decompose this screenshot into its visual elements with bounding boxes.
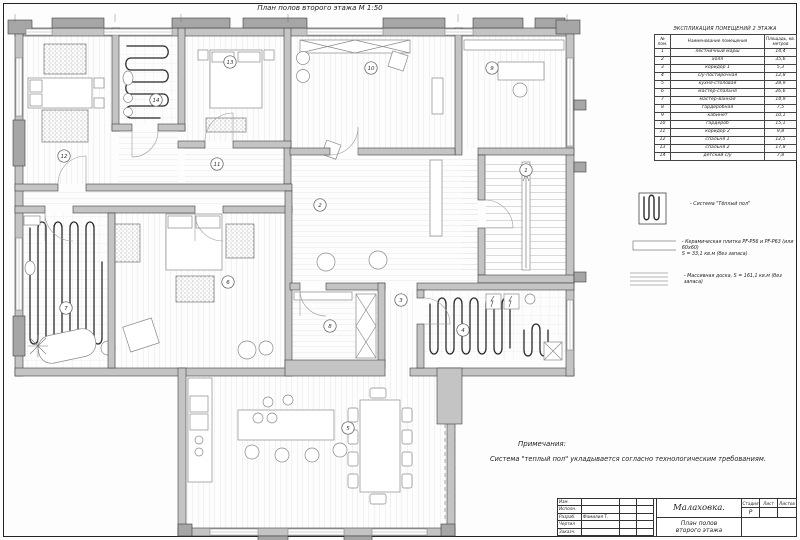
explication-row: 3коридор 15,3 (655, 65, 797, 73)
svg-text:6: 6 (226, 280, 230, 286)
explication-row: 12спальня 112,5 (655, 137, 797, 145)
svg-text:1: 1 (524, 168, 528, 174)
heated-floor-coil-icon (638, 192, 668, 226)
explication-row: 5кухня-столовая28,9 (655, 81, 797, 89)
notes-heading: Примечания: (518, 440, 790, 448)
shaft-wall (437, 368, 462, 424)
svg-text:14: 14 (153, 98, 160, 104)
stamp-row-label: Заказч. (558, 529, 582, 536)
project-name: Малаховка. (657, 499, 741, 518)
explication-table: ЭКСПЛИКАЦИЯ ПОМЕЩЕНИЙ 2 ЭТАЖА № пом. Наи… (654, 27, 796, 161)
explication-row: 13спальня 217,8 (655, 145, 797, 153)
explication-row: 14детский с/у7,8 (655, 153, 797, 161)
sheet-label: Лист (760, 499, 778, 508)
explication-row: 11коридор 29,8 (655, 129, 797, 137)
explication-row: 2холл35,6 (655, 57, 797, 65)
svg-text:8: 8 (328, 324, 332, 330)
explication-row: 8гардеробная7,5 (655, 105, 797, 113)
svg-text:4: 4 (461, 328, 465, 334)
svg-text:12: 12 (61, 154, 68, 160)
col-room-name: Наименование помещения (671, 35, 765, 49)
explication-row: 9кабинет10,1 (655, 113, 797, 121)
explication-title: ЭКСПЛИКАЦИЯ ПОМЕЩЕНИЙ 2 ЭТАЖА (654, 27, 796, 32)
legend-label: - Система "Тёплый пол" (690, 202, 750, 208)
drawing-name: План полов второго этажа (657, 518, 741, 536)
col-room-area: Площадь, кв. метров (765, 35, 797, 49)
svg-text:9: 9 (490, 66, 494, 72)
explication-row: 6мастер-спальня26,6 (655, 89, 797, 97)
sheet-title: План полов второго этажа М 1:50 (215, 4, 425, 12)
svg-text:2: 2 (318, 203, 322, 209)
svg-text:10: 10 (368, 66, 375, 72)
svg-text:7: 7 (64, 306, 68, 312)
stamp-row-label: Исполн. (558, 506, 582, 513)
legend-item-ceramic-tile: - Керамическая плитка PF-P56 и PF-P63 (и… (632, 240, 796, 259)
notes: Примечания: Система "теплый пол" укладыв… (490, 440, 790, 463)
legend-label: - Керамическая плитка PF-P56 и PF-P63 (и… (682, 240, 794, 251)
svg-text:3: 3 (399, 298, 403, 304)
stamp-designer-name: Фамилия Т. (582, 514, 620, 521)
sheets-label: Листов (778, 499, 796, 508)
notes-text: Система "теплый пол" укладывается соглас… (490, 455, 790, 463)
title-block: Изм. Исполн. Разраб.Фамилия Т. Чертил За… (557, 498, 797, 537)
stage-value: Р (742, 508, 760, 518)
svg-text:13: 13 (227, 60, 234, 66)
drawing-sheet: 1234567891011121314 План полов второго э… (0, 0, 800, 540)
ceramic-tile-icon (632, 240, 676, 252)
stamp-row-label: Изм. (558, 499, 582, 506)
legend-label: - Массивная доска, S = 161,1 кв.м (без з… (684, 274, 796, 286)
svg-text:5: 5 (346, 426, 350, 432)
stamp-row-label: Чертил (558, 521, 582, 528)
legend-item-solid-board: - Массивная доска, S = 161,1 кв.м (без з… (630, 270, 796, 286)
title-block-signatures: Изм. Исполн. Разраб.Фамилия Т. Чертил За… (558, 499, 657, 536)
explication-row: 4с/у-постирочная12,8 (655, 73, 797, 81)
col-room-number: № пом. (655, 35, 671, 49)
stamp-row-label: Разраб. (558, 514, 582, 521)
explication-body: 1лестничный марш14,42холл35,63коридор 15… (655, 49, 797, 161)
svg-text:11: 11 (214, 162, 221, 168)
legend-item-heated-floor: - Система "Тёплый пол" (638, 192, 750, 226)
stage-label: Стадия (742, 499, 760, 508)
title-block-stage: Стадия Лист Листов Р (742, 499, 796, 536)
explication-row: 1лестничный марш14,4 (655, 49, 797, 57)
legend-label-2: S = 33,1 кв.м (без запаса) (682, 252, 748, 257)
solid-board-icon (630, 270, 668, 286)
title-block-center: Малаховка. План полов второго этажа (657, 499, 742, 536)
explication-row: 10гардероб15,1 (655, 121, 797, 129)
explication-row: 7мастер-ванная14,9 (655, 97, 797, 105)
